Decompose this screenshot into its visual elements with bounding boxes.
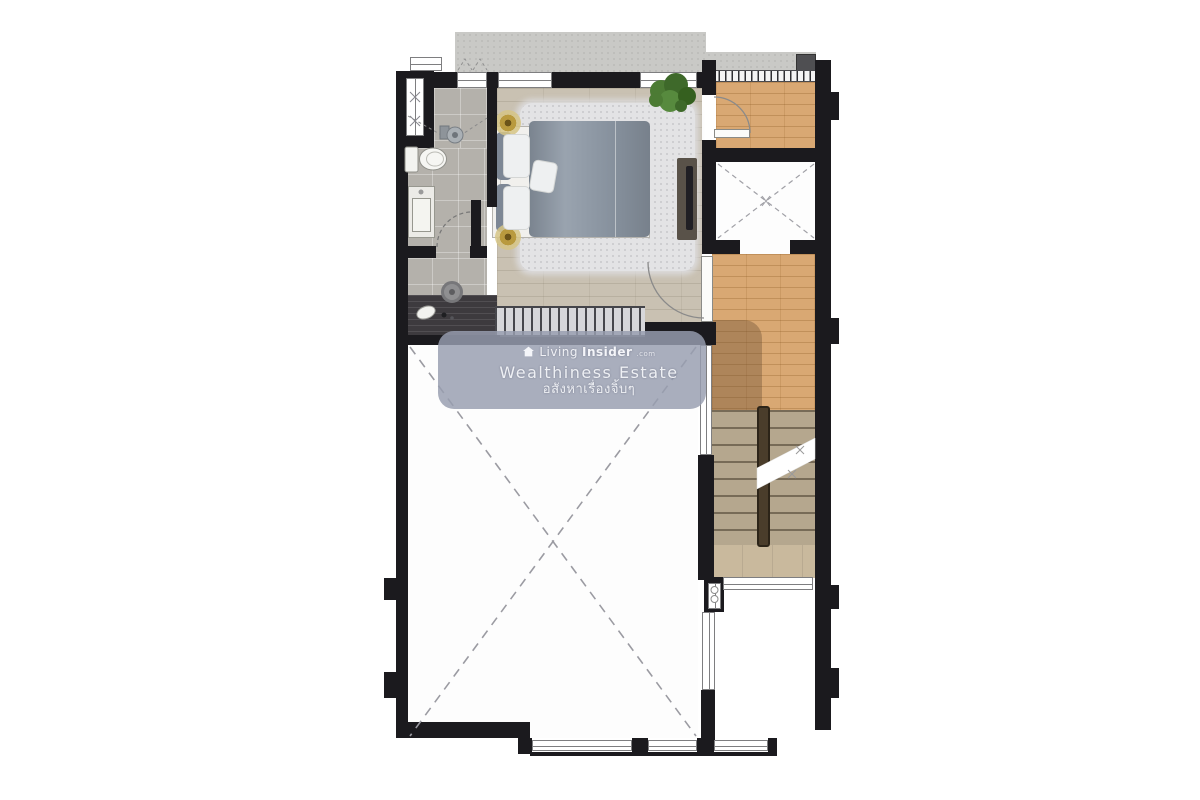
wall-segment bbox=[702, 140, 716, 254]
watermark-tagline-thai: อสังหาเรื่องจิ้บๆ bbox=[543, 382, 635, 398]
watermark: Living Insider .com Wealthiness Estate อ… bbox=[438, 331, 706, 409]
brand-prefix: Living bbox=[539, 345, 578, 359]
stair-shadow bbox=[712, 320, 762, 410]
stair-landing-floor bbox=[712, 545, 816, 578]
wall-segment bbox=[487, 72, 497, 207]
wall-stub bbox=[831, 318, 839, 344]
deck-door-leaf bbox=[714, 129, 750, 138]
tv bbox=[686, 166, 693, 230]
window-lower-right bbox=[702, 612, 715, 690]
brand-domain: .com bbox=[636, 347, 655, 361]
stair-flight-right bbox=[770, 410, 815, 545]
wall-segment bbox=[815, 60, 831, 730]
wall-stub bbox=[384, 578, 396, 600]
wall-segment bbox=[406, 246, 436, 258]
watermark-tagline: Wealthiness Estate bbox=[499, 364, 678, 382]
brand-line: Living Insider .com bbox=[522, 343, 655, 361]
concrete-ledge bbox=[455, 32, 706, 72]
elevator-shaft-floor bbox=[716, 162, 816, 240]
floor-plan-canvas: Living Insider .com Wealthiness Estate อ… bbox=[0, 0, 1200, 800]
wall-segment bbox=[716, 148, 816, 162]
balcony-deck-floor bbox=[716, 82, 816, 148]
vanity-sink bbox=[412, 198, 431, 232]
living-insider-logo-icon bbox=[522, 345, 535, 358]
wall-segment bbox=[552, 72, 640, 88]
ac-ledge bbox=[406, 78, 424, 136]
wall-segment bbox=[396, 722, 530, 738]
wall-sill-line bbox=[530, 752, 777, 756]
window bbox=[498, 72, 552, 88]
window bbox=[457, 72, 487, 88]
wall-segment bbox=[396, 148, 408, 722]
wall-stub bbox=[384, 672, 396, 698]
stair-center-rail bbox=[757, 406, 770, 547]
louver-vent bbox=[712, 70, 816, 82]
pillow bbox=[503, 134, 530, 178]
wall-segment bbox=[698, 455, 714, 580]
window-bottom bbox=[714, 740, 768, 751]
stool bbox=[441, 281, 463, 303]
window-bottom bbox=[648, 740, 697, 751]
pillow bbox=[503, 186, 530, 230]
window-bottom bbox=[532, 740, 632, 751]
wall-segment bbox=[470, 246, 487, 258]
bedside-lamp-left bbox=[495, 110, 521, 136]
window bbox=[640, 72, 697, 88]
elevator-door-gap bbox=[740, 240, 790, 254]
brand-suffix: Insider bbox=[582, 345, 632, 359]
pipe-shaft bbox=[708, 583, 721, 609]
bathroom-floor-shower bbox=[434, 88, 487, 148]
window bbox=[410, 57, 442, 71]
wall-stub bbox=[831, 92, 839, 120]
stair-flight-left bbox=[712, 410, 757, 545]
cushion bbox=[528, 159, 558, 194]
wall-stub bbox=[831, 668, 839, 698]
wall-segment bbox=[702, 60, 716, 95]
bathroom-door-leaf bbox=[471, 200, 481, 248]
wall-stub bbox=[831, 585, 839, 609]
window-below-landing bbox=[723, 577, 813, 590]
bedroom-door-leaf bbox=[701, 256, 713, 322]
